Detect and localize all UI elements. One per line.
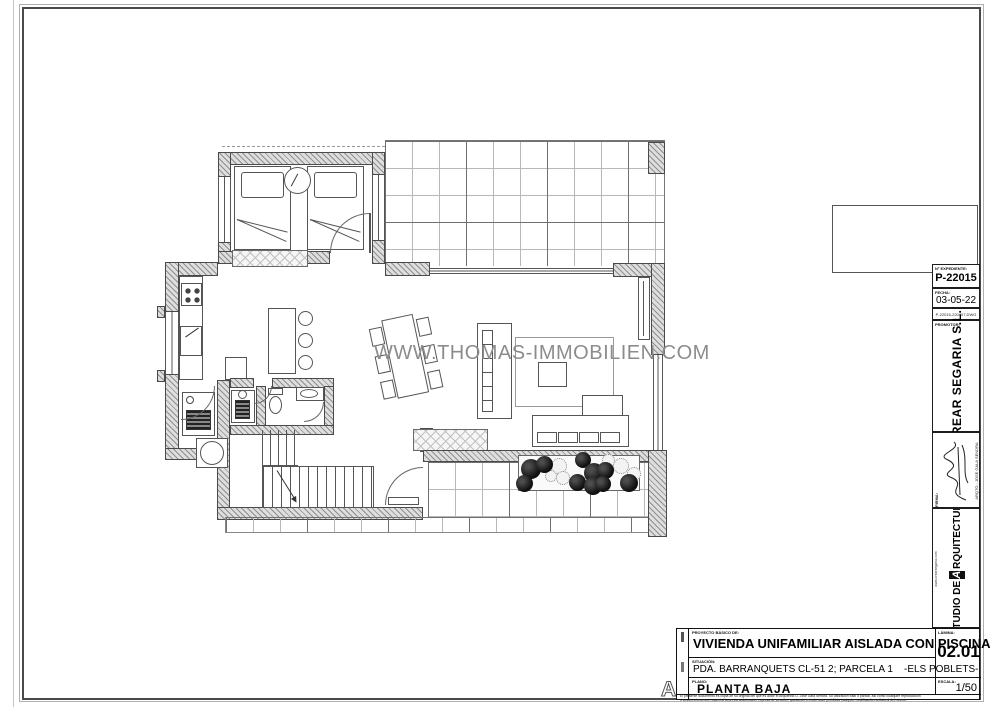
wall-west-a	[165, 262, 179, 312]
micro-stamp-2	[681, 662, 684, 672]
shower-mat	[235, 400, 250, 419]
bedroom-window-left	[218, 177, 231, 242]
washbasin-bowl	[300, 389, 318, 398]
situacion-value: PDA. BARRANQUETS CL-51 2; PARCELA 1 -ELS…	[689, 664, 935, 676]
bed-2-pillow	[314, 172, 357, 198]
bedroom-window-right	[372, 175, 385, 240]
sill-west-2	[157, 370, 165, 382]
proyecto-value: VIVIENDA UNIFAMILIAR AISLADA CON PISCINA	[689, 635, 935, 653]
terrace-bottom-tiles-b	[225, 517, 648, 533]
lamina-value: 02.01	[936, 635, 981, 669]
sofa-cushion-3	[579, 432, 599, 443]
expediente-value: P-22015	[933, 271, 979, 285]
stair-railing	[262, 430, 298, 466]
toilet-bowl	[269, 396, 282, 414]
sliding-glass-door	[430, 268, 613, 274]
promotor-box: PROMOTOR: CREAR SEGARIA S.L.	[932, 320, 980, 432]
situacion-row: SITUACIÓN: PDA. BARRANQUETS CL-51 2; PAR…	[689, 658, 935, 678]
wall-west-b	[165, 374, 179, 458]
wall-north-a	[385, 262, 430, 276]
kitchen-sink	[180, 326, 202, 356]
sofa-cushion-1	[537, 432, 557, 443]
wall-north-b	[613, 263, 653, 277]
bed-1	[234, 166, 291, 250]
bush-3	[516, 475, 533, 492]
drawing-sheet: WWW.THOMAS-IMMOBILIEN.COM Nº EXPEDIENTE:…	[0, 0, 1000, 707]
tv-bench	[413, 429, 488, 451]
disclaimer-line-2: o cesión a terceros, requerirá la previa…	[680, 699, 978, 703]
escala-value: 1/50	[936, 684, 981, 693]
floor-plan: WWW.THOMAS-IMMOBILIEN.COM	[0, 0, 1000, 707]
coffee-table	[538, 362, 567, 387]
web-text: www.crearsegaria.com	[933, 551, 938, 586]
bath-wall-top-a	[230, 378, 254, 388]
plano-row: PLANO: PLANTA BAJA	[689, 678, 935, 694]
sofa-cushion-2	[558, 432, 578, 443]
bedroom-wall-top	[218, 152, 385, 165]
stool-2	[298, 333, 313, 348]
terrace-pillar	[648, 142, 665, 174]
dining-chair-4	[416, 317, 432, 337]
bedroom-door-leaf	[369, 213, 371, 253]
terrace-top-tiles	[385, 140, 665, 266]
sill-west-1	[157, 306, 165, 318]
estudio-box: ESTUDIO DE A RQUITECTURA www.crearsegari…	[932, 508, 980, 628]
wall-east-terrace	[648, 450, 667, 537]
arquitecto-text: ARQTO.: JOSE GALA SENDRA	[974, 442, 980, 499]
kitchen-island	[268, 308, 296, 374]
bedroom-wall-right-a	[372, 152, 385, 175]
shower-head	[238, 390, 247, 399]
promotor-rotated: CREAR SEGARIA S.L.	[933, 321, 981, 433]
title-block: PROYECTO BÁSICO DE: VIVIENDA UNIFAMILIAR…	[676, 628, 980, 700]
ceiling-fan-icon	[284, 167, 311, 194]
fecha-value: 03-05-22	[933, 295, 979, 306]
title-block-left-column	[677, 629, 689, 699]
fecha-box: FECHA: 03-05-22	[932, 288, 980, 308]
corner-logo-a: A	[661, 679, 676, 701]
stove	[181, 283, 202, 306]
utility-basin	[200, 441, 224, 465]
escala-cell: ESCALA: 1/50	[935, 678, 981, 694]
tv-cabinet	[638, 277, 650, 340]
watermark: WWW.THOMAS-IMMOBILIEN.COM	[374, 342, 710, 365]
bedroom-wall-left-a	[218, 152, 231, 177]
bush-10	[620, 474, 638, 492]
stool-1	[298, 311, 313, 326]
tv-cabinet-line	[643, 281, 644, 336]
lamina-cell: LÁMINA: 02.01	[935, 629, 981, 678]
flower-2	[556, 471, 570, 485]
kitchen-window-west	[165, 312, 179, 374]
living-window-east	[653, 355, 663, 451]
stool-3	[298, 355, 313, 370]
firma-box: FIRMA: ARQTO.: JOSE GALA SENDRA	[932, 432, 980, 508]
entrance-door-leaf	[388, 497, 419, 505]
bathroom-door-arc-2	[304, 402, 324, 422]
promotor-name: CREAR SEGARIA S.L.	[950, 310, 964, 445]
proyecto-row: PROYECTO BÁSICO DE: VIVIENDA UNIFAMILIAR…	[689, 629, 935, 658]
adjacent-outline	[832, 205, 978, 273]
arquitecto-rotated: ARQTO.: JOSE GALA SENDRA	[933, 433, 980, 508]
sofa-cushion-4	[600, 432, 620, 443]
eave-dashed-line	[222, 146, 385, 147]
web-rotated: www.crearsegaria.com	[933, 509, 980, 628]
planter	[518, 455, 640, 491]
bush-2	[536, 456, 553, 473]
plano-value: PLANTA BAJA	[689, 684, 935, 694]
kitchen-cabinet	[225, 357, 247, 380]
bath-wall-right	[324, 386, 334, 430]
micro-stamp-1	[681, 632, 684, 642]
wardrobe	[232, 250, 308, 267]
bedroom-wall-right-b	[372, 240, 385, 264]
bed-1-pillow	[241, 172, 284, 198]
expediente-box: Nº EXPEDIENTE: P-22015	[932, 264, 980, 288]
disclaimer-row: El presente documento es copia de su ori…	[677, 694, 981, 701]
bush-9	[595, 476, 611, 492]
dining-chair-6	[427, 369, 443, 389]
